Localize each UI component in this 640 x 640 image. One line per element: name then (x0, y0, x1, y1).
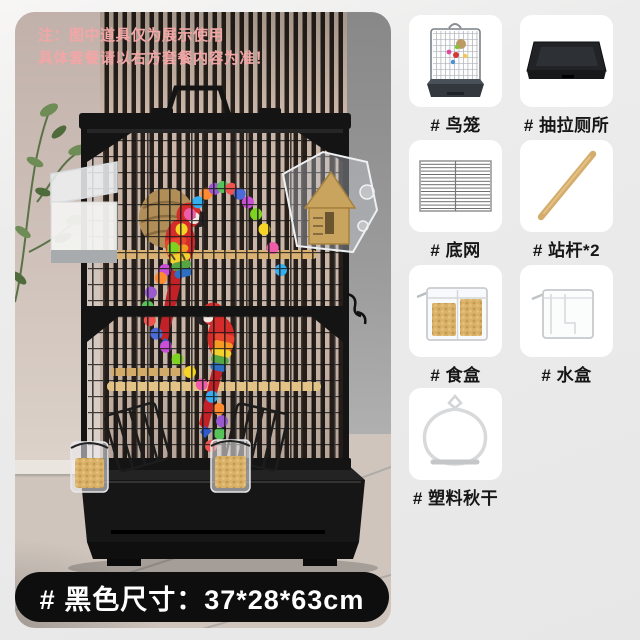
water-box-icon (520, 265, 613, 357)
package-item-card-bottom-grid (409, 140, 502, 232)
package-item-label: # 食盒 (409, 361, 502, 386)
package-item-label: # 站杆*2 (520, 236, 613, 261)
product-photo: 注：图中道具仅为展示使用 具体套餐请以右方套餐内容为准！ (15, 12, 391, 628)
side-hooks (347, 294, 365, 324)
product-detail-image: 注：图中道具仅为展示使用 具体套餐请以右方套餐内容为准！ # 黑色尺寸：37*2… (0, 0, 640, 640)
package-item-card-food-box (409, 265, 502, 357)
bottom-grid-icon (409, 140, 502, 232)
wooden-perch-icon (520, 140, 613, 232)
plastic-swing-icon (409, 388, 502, 480)
disclaimer-note: 注：图中道具仅为展示使用 具体套餐请以右方套餐内容为准！ (38, 24, 271, 70)
package-item-card-perch (520, 140, 613, 232)
package-item-label: # 底网 (409, 236, 502, 261)
package-item-card-swing (409, 388, 502, 480)
package-item-card-birdcage (409, 15, 502, 107)
cage-handle (167, 88, 229, 116)
size-badge: # 黑色尺寸：37*28*63cm (15, 572, 389, 622)
package-item-card-pullout-tray (520, 15, 613, 107)
white-side-feeder (51, 162, 117, 263)
disclaimer-line-1: 注：图中道具仅为展示使用 (38, 24, 271, 47)
bird-cage-scene (15, 12, 391, 628)
mini-birdcage-icon (409, 15, 502, 107)
package-item-label: # 抽拉厕所 (520, 111, 613, 136)
pull-out-tray-icon (520, 15, 613, 107)
package-item-label: # 塑料秋干 (409, 484, 502, 509)
package-item-card-water-box (520, 265, 613, 357)
package-item-label: # 水盒 (520, 361, 613, 386)
disclaimer-line-2: 具体套餐请以右方套餐内容为准！ (38, 47, 271, 70)
size-badge-label: # 黑色尺寸：37*28*63cm (40, 578, 365, 617)
clear-house-feeder (283, 152, 377, 252)
package-item-label: # 鸟笼 (409, 111, 502, 136)
food-box-icon (409, 265, 502, 357)
